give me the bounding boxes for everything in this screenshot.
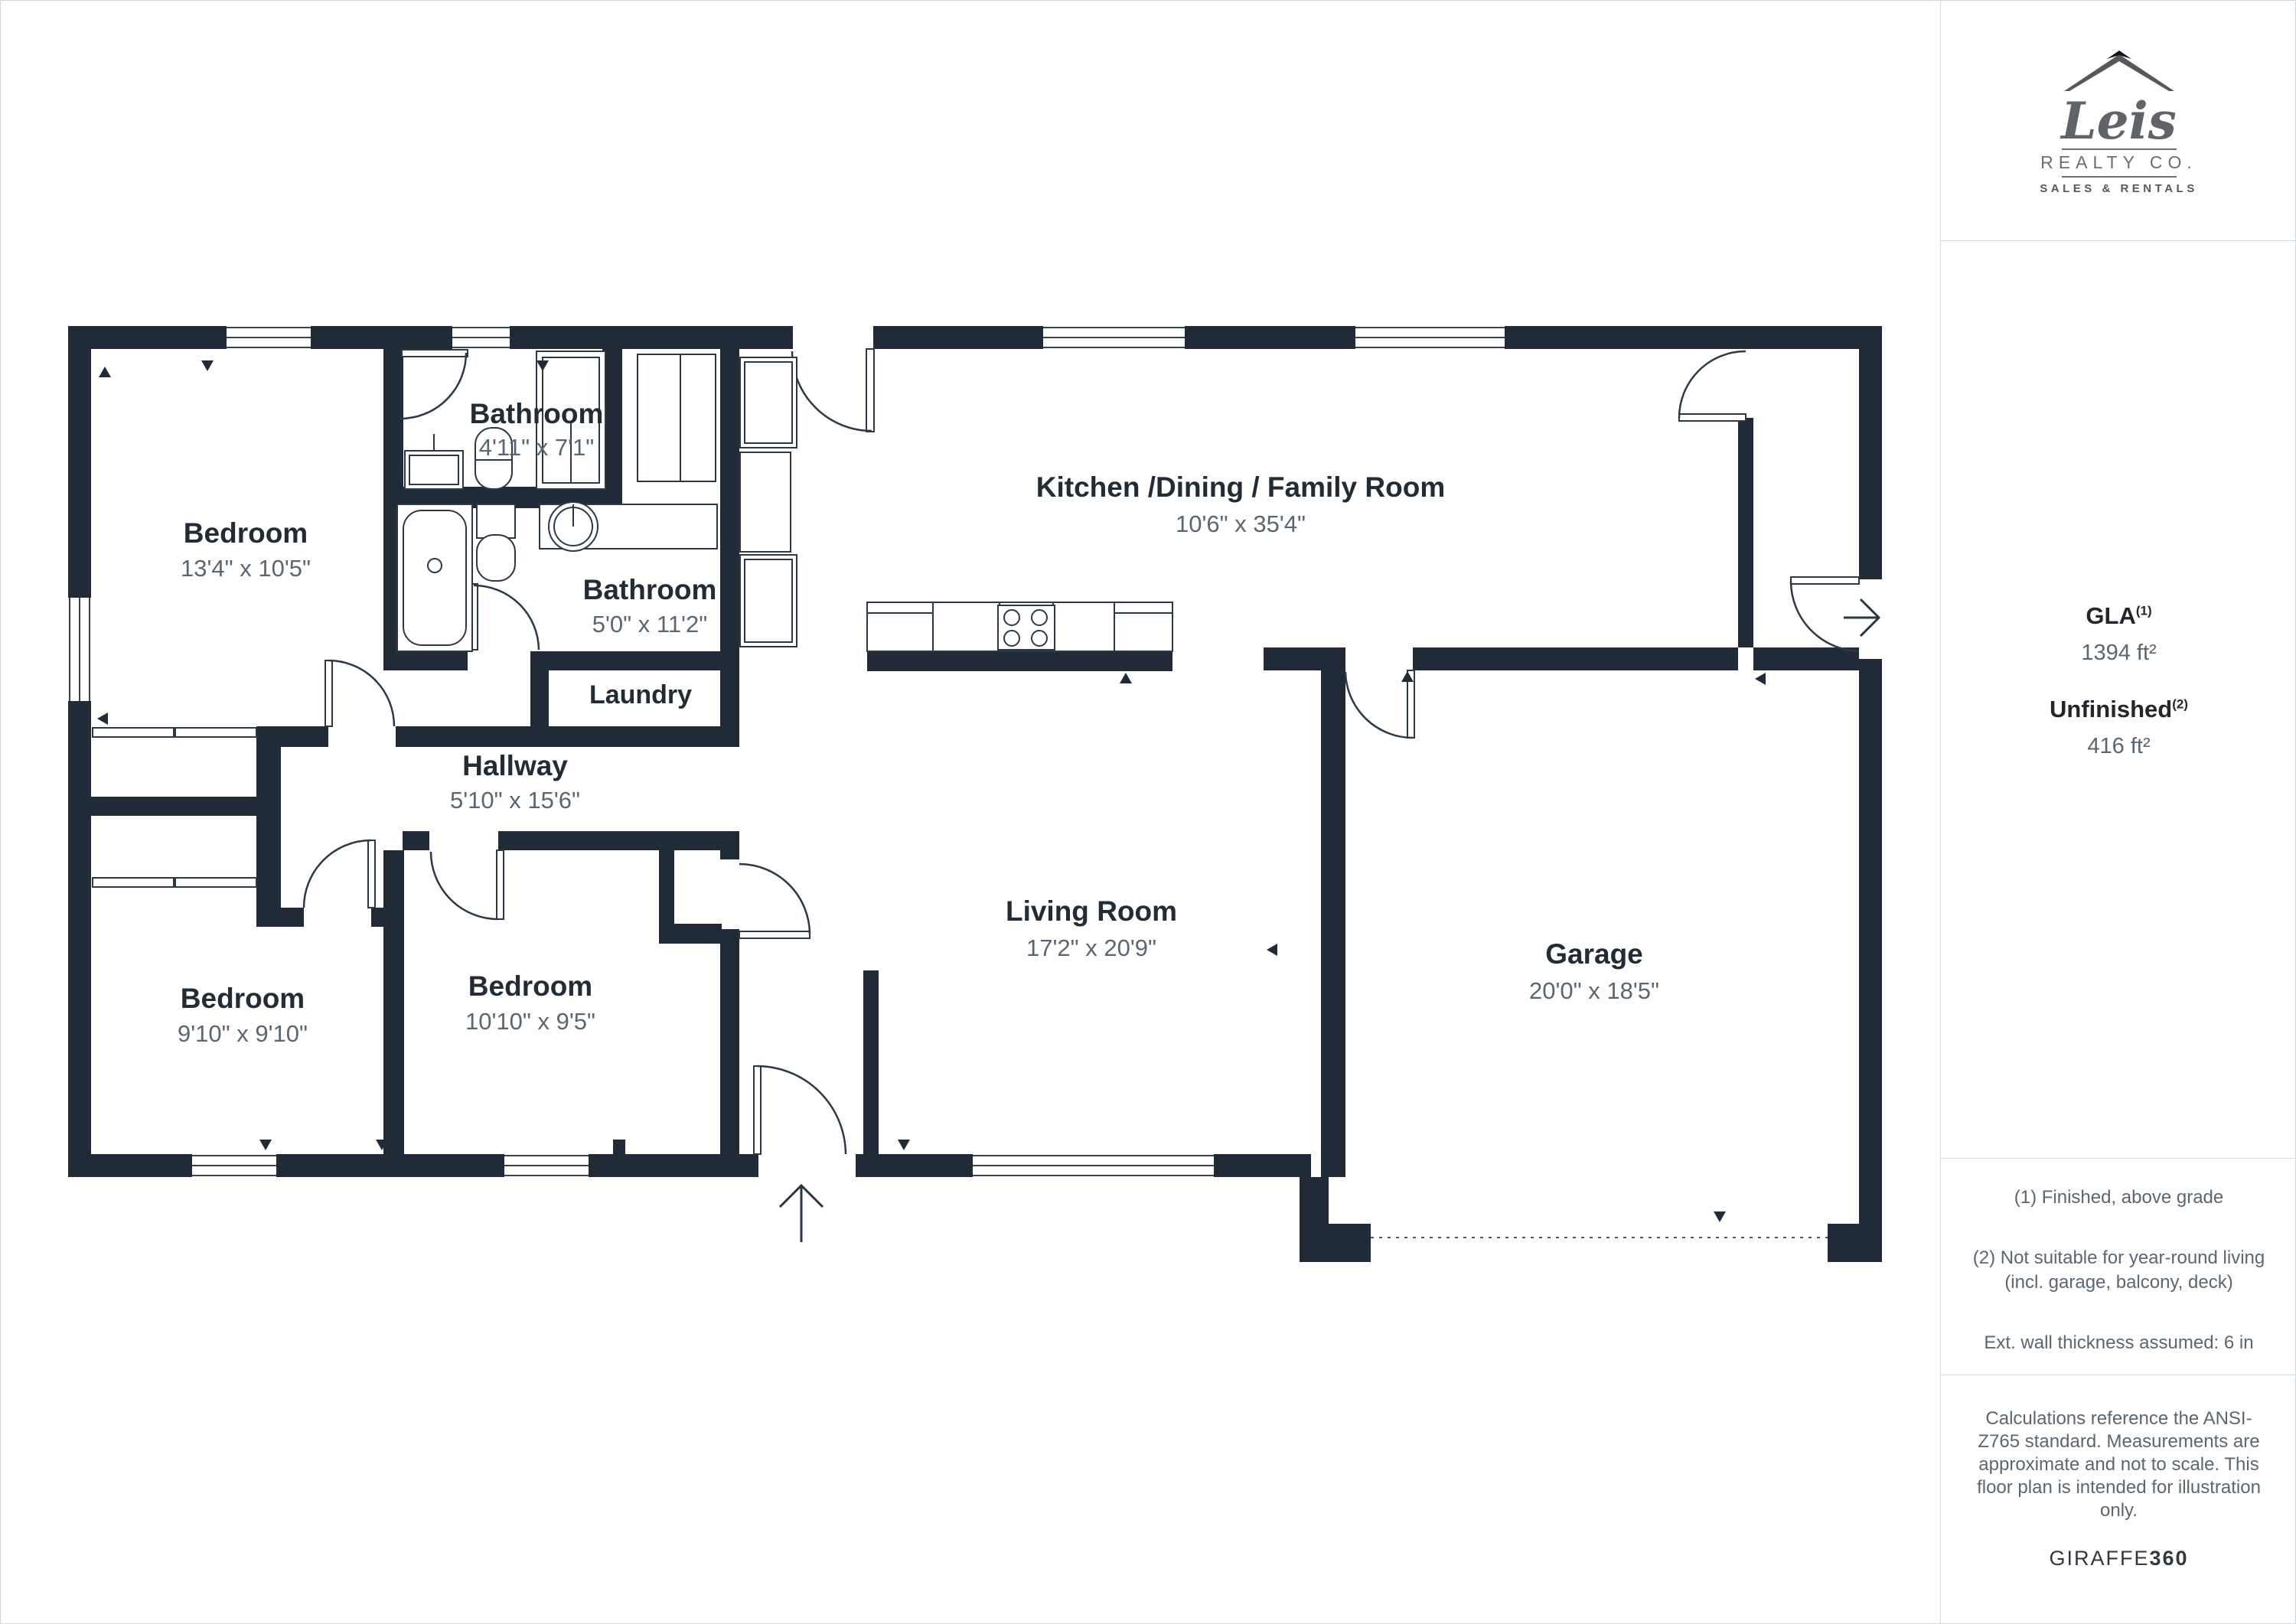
room-dims-bathroom-top: 4'11" x 7'1" (479, 434, 594, 461)
entry-arrow-icon (780, 1185, 823, 1242)
footnote-2: (2) Not suitable for year-round living (… (1958, 1246, 2280, 1295)
unfinished-label: Unfinished(2) (1941, 696, 2296, 723)
room-dims-kitchen: 10'6" x 35'4" (1176, 510, 1306, 537)
room-label-bedroom-top-left: Bedroom (184, 517, 308, 549)
wall-markers (97, 360, 1766, 1222)
kitchen-counter (867, 602, 1172, 651)
room-dims-bedroom-bottom-mid: 10'10" x 9'5" (465, 1008, 595, 1035)
unfinished-value: 416 ft² (1941, 734, 2296, 759)
gla-sup: (1) (2136, 604, 2152, 618)
window (1043, 328, 1185, 347)
room-label-laundry: Laundry (589, 680, 692, 709)
gla-value: 1394 ft² (1941, 641, 2296, 666)
room-dims-living-room: 17'2" x 20'9" (1026, 934, 1156, 961)
disclaimer: Calculations reference the ANSI-Z765 sta… (1968, 1407, 2270, 1570)
interior-walls (91, 349, 1172, 1177)
entry-door (754, 1066, 846, 1154)
bathroom-top-door (400, 350, 468, 419)
logo-subtitle: REALTY CO. (1941, 152, 2296, 173)
room-label-hallway: Hallway (462, 750, 568, 781)
roof-icon (2043, 48, 2196, 93)
logo-name: Leis (1941, 96, 2296, 145)
gla-section: GLA(1) 1394 ft² (1941, 602, 2296, 666)
window (192, 1156, 276, 1176)
side-door (1791, 577, 1859, 651)
window (70, 598, 90, 701)
unfinished-sup: (2) (2172, 697, 2188, 712)
vestibule-door (1679, 351, 1746, 421)
room-dims-hallway: 5'10" x 15'6" (450, 787, 580, 814)
room-label-bedroom-bottom-mid: Bedroom (468, 970, 592, 1002)
window (973, 1156, 1214, 1176)
toilet-icon (477, 504, 515, 581)
window (504, 1156, 589, 1176)
room-label-bathroom-top: Bathroom (470, 398, 604, 429)
brand-giraffe: GIRAFFE (2049, 1547, 2149, 1570)
fridge-icon (740, 357, 797, 448)
sink-icon (405, 434, 463, 489)
oven-icon (740, 555, 797, 647)
room-label-kitchen: Kitchen /Dining / Family Room (1036, 471, 1445, 503)
window (227, 328, 311, 347)
bathroom-main-door (471, 584, 539, 650)
garage-walls (1264, 418, 1859, 1262)
exterior-walls (68, 326, 1882, 1262)
living-room-closet-door (739, 864, 810, 938)
footnote-3: Ext. wall thickness assumed: 6 in (1958, 1331, 2280, 1355)
room-dims-bedroom-top-left: 13'4" x 10'5" (181, 555, 311, 582)
logo-tagline: SALES & RENTALS (1941, 182, 2296, 195)
room-dims-garage: 20'0" x 18'5" (1529, 977, 1659, 1004)
info-sidebar: Leis REALTY CO. SALES & RENTALS GLA(1) 1… (1940, 1, 2296, 1624)
room-label-bedroom-bottom-left: Bedroom (181, 983, 305, 1014)
side-entry-arrow-icon (1844, 599, 1879, 636)
divider (1941, 1158, 2296, 1159)
footnote-1: (1) Finished, above grade (1958, 1185, 2280, 1210)
floor-plan-page: Bedroom 13'4" x 10'5" Bathroom 4'11" x 7… (0, 0, 2296, 1624)
window (1355, 328, 1505, 347)
brand-360: 360 (2149, 1547, 2188, 1570)
unfinished-text: Unfinished (2050, 696, 2172, 722)
gla-label: GLA(1) (1941, 602, 2296, 630)
bedroom-bottom-mid-door (431, 850, 504, 919)
giraffe360-logo: GIRAFFE360 (1968, 1547, 2270, 1570)
room-dims-bathroom-main: 5'0" x 11'2" (592, 611, 707, 638)
room-dims-bedroom-bottom-left: 9'10" x 9'10" (178, 1020, 308, 1047)
bathtub-icon (397, 504, 472, 651)
room-label-garage: Garage (1545, 938, 1643, 970)
gla-text: GLA (2086, 602, 2135, 629)
room-label-living-room: Living Room (1006, 895, 1177, 927)
window (452, 328, 510, 347)
room-label-bathroom-main: Bathroom (583, 574, 717, 605)
counter-cabinet (740, 452, 791, 552)
footnotes: (1) Finished, above grade (2) Not suitab… (1958, 1185, 2280, 1391)
unfinished-section: Unfinished(2) 416 ft² (1941, 696, 2296, 759)
vanity-sink-icon (540, 502, 717, 551)
bedroom-bottom-left-door (304, 840, 375, 908)
logo-divider (2062, 176, 2177, 178)
entry-closet (638, 354, 716, 481)
disclaimer-text: Calculations reference the ANSI-Z765 sta… (1968, 1407, 2270, 1522)
front-door (792, 349, 874, 432)
stove-icon (998, 605, 1055, 650)
realty-logo: Leis REALTY CO. SALES & RENTALS (1941, 48, 2296, 195)
divider (1941, 240, 2296, 241)
